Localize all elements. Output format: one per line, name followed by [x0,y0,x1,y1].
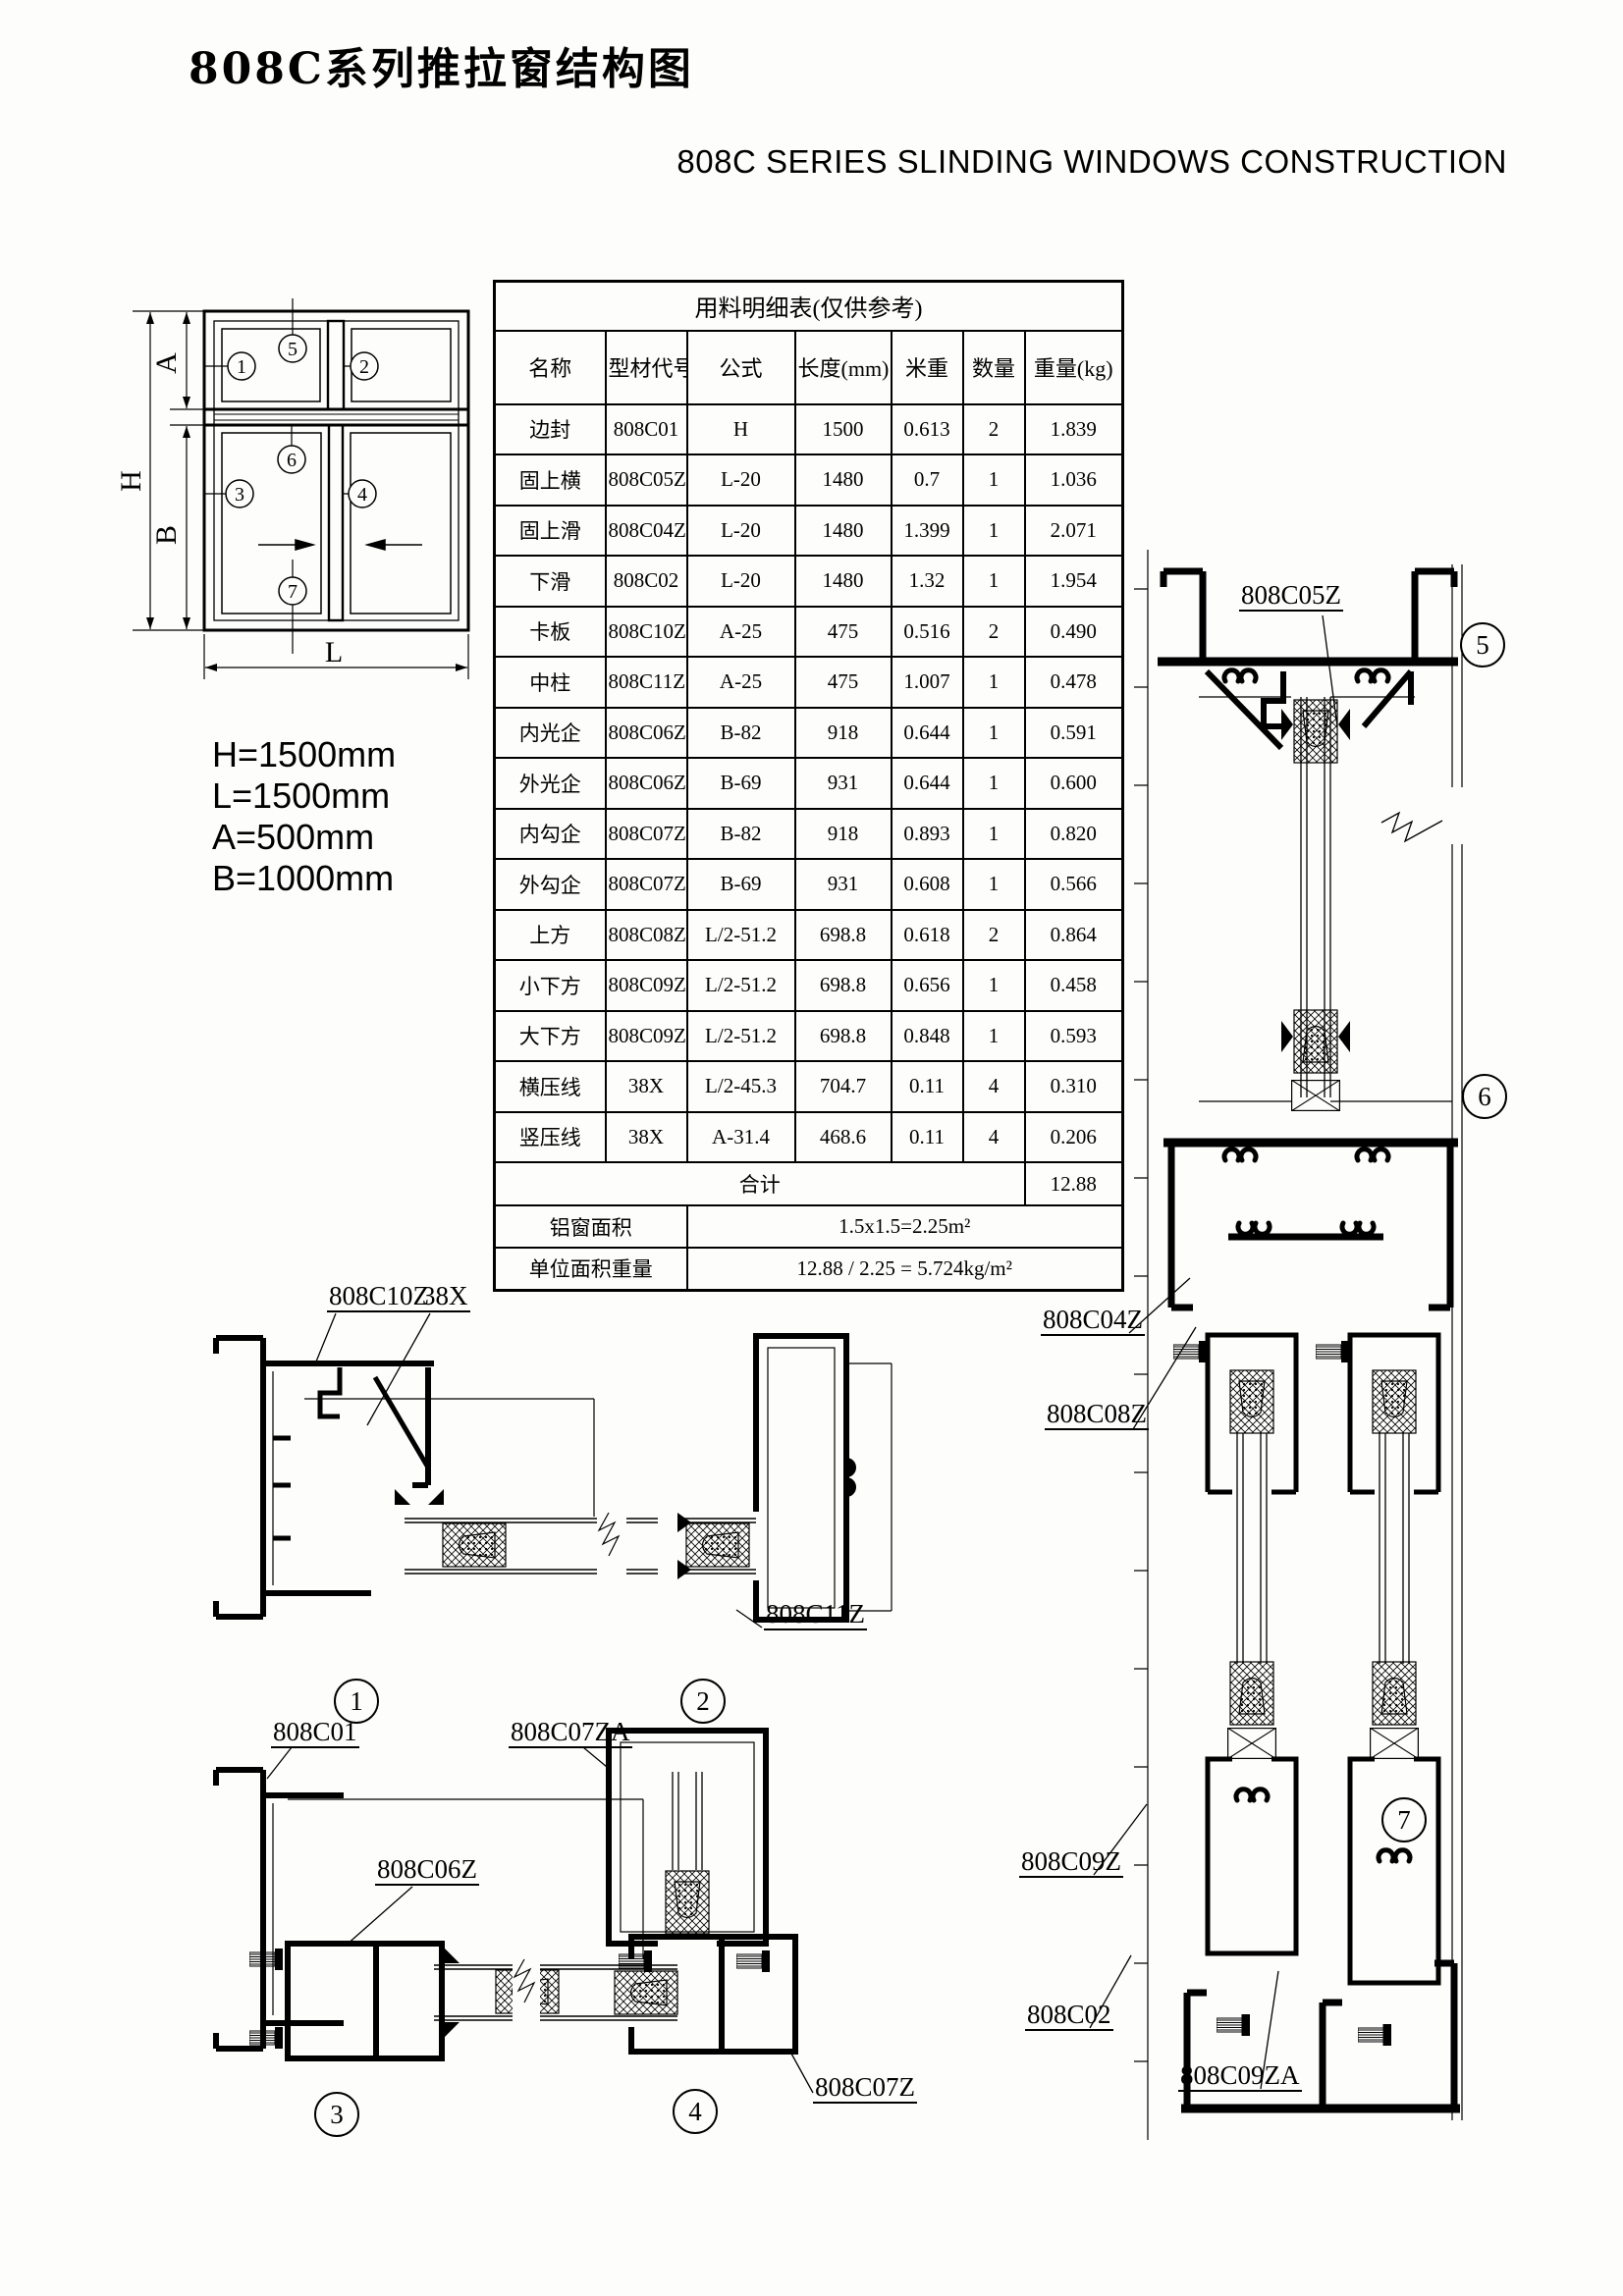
table-cell: 0.644 [892,708,963,759]
table-cell: 38X [606,1112,687,1163]
table-cell: 808C10Z [606,607,687,658]
col-profile-code: 型材代号 [606,331,687,404]
callout-5: 5 [1460,622,1505,667]
table-body: 边封808C01H15000.61321.839固上横808C05ZL-2014… [495,404,1123,1163]
table-cell: 918 [795,708,892,759]
table-cell: 1 [963,809,1025,860]
table-cell: 1 [963,454,1025,506]
table-cell: 0.613 [892,404,963,455]
glazing-into-mullion [677,1513,756,1579]
table-cell: 0.893 [892,809,963,860]
table-cell: L/2-51.2 [687,910,795,961]
mullion-profile-808C11Z [756,1336,892,1620]
table-cell: 0.478 [1025,657,1123,708]
table-cell: 1 [963,859,1025,910]
table-cell: 1 [963,960,1025,1011]
col-length: 长度(mm) [795,331,892,404]
svg-text:3: 3 [235,484,244,506]
table-cell: 2 [963,404,1025,455]
table-cell: 0.618 [892,910,963,961]
table-cell: 808C07ZA [606,809,687,860]
table-header-row: 名称 型材代号 公式 长度(mm) 米重 数量 重量(kg) [495,331,1123,404]
col-weight: 重量(kg) [1025,331,1123,404]
table-cell: B-69 [687,859,795,910]
table-row: 固上滑808C04ZL-2014801.39912.071 [495,506,1123,557]
table-cell: B-82 [687,809,795,860]
dimension-lines [133,311,468,679]
table-cell: H [687,404,795,455]
table-cell: 2 [963,607,1025,658]
table-cell: 0.656 [892,960,963,1011]
table-cell: 808C11Z [606,657,687,708]
svg-text:4: 4 [357,484,367,506]
table-cell: 固上横 [495,454,606,506]
table-cell: 0.864 [1025,910,1123,961]
table-row: 横压线38XL/2-45.3704.70.1140.310 [495,1061,1123,1112]
table-row: 竖压线38XA-31.4468.60.1140.206 [495,1112,1123,1163]
table-cell: 698.8 [795,960,892,1011]
table-cell: 1 [963,657,1025,708]
table-cell: 1500 [795,404,892,455]
table-cell: 0.516 [892,607,963,658]
table-cell: 468.6 [795,1112,892,1163]
sash-column-right [1316,1335,1438,1983]
fixed-glazing-horizontal-1 [304,1399,658,1585]
table-cell: A-25 [687,657,795,708]
vertical-section-drawing [1134,550,1478,2140]
svg-text:2: 2 [359,356,369,378]
table-cell: 2 [963,910,1025,961]
table-cell: 931 [795,758,892,809]
table-cell: 1480 [795,454,892,506]
table-cell: 808C01 [606,404,687,455]
svg-text:6: 6 [287,450,297,471]
table-cell: 横压线 [495,1061,606,1112]
svg-text:5: 5 [288,339,298,360]
break-symbol [1376,787,1466,844]
table-cell: 4 [963,1112,1025,1163]
table-cell: 竖压线 [495,1112,606,1163]
table-cell: 704.7 [795,1061,892,1112]
materials-table: 用料明细表(仅供参考) 名称 型材代号 公式 长度(mm) 米重 数量 重量(k… [493,280,1124,1292]
sash-column-left [1173,1335,1296,1953]
label-808C08Z: 808C08Z [1045,1400,1149,1430]
bead-38X [375,1377,428,1468]
table-cell: B-82 [687,708,795,759]
label-808C07ZA: 808C07ZA [509,1718,632,1748]
table-row: 卡板808C10ZA-254750.51620.490 [495,607,1123,658]
table-cell: 0.820 [1025,809,1123,860]
table-cell: 1.954 [1025,556,1123,607]
table-cell: 1 [963,1011,1025,1062]
table-cell: 4 [963,1061,1025,1112]
transom-profile-808C04Z [1163,1143,1458,1308]
table-cell: 1.839 [1025,404,1123,455]
col-name: 名称 [495,331,606,404]
dim-l: L=1500mm [212,775,396,817]
table-cell: B-69 [687,758,795,809]
table-cell: 固上滑 [495,506,606,557]
table-row: 中柱808C11ZA-254751.00710.478 [495,657,1123,708]
table-title: 用料明细表(仅供参考) [495,282,1123,331]
table-cell: 0.848 [892,1011,963,1062]
table-cell: 1.32 [892,556,963,607]
table-cell: 808C06Z [606,758,687,809]
table-cell: 外光企 [495,758,606,809]
schematic-callouts: 1 5 2 6 3 4 7 [226,335,378,605]
area-value: 1.5x1.5=2.25m² [687,1205,1123,1248]
table-cell: 808C07Z [606,859,687,910]
table-row: 边封808C01H15000.61321.839 [495,404,1123,455]
dimension-values: H=1500mm L=1500mm A=500mm B=1000mm [212,734,396,899]
table-cell: 808C09Z [606,960,687,1011]
table-cell: 0.490 [1025,607,1123,658]
fixed-glazing-unit [1199,697,1452,1111]
unit-weight-label: 单位面积重量 [495,1248,687,1290]
table-cell: L/2-51.2 [687,1011,795,1062]
horizontal-section-1-2 [147,1320,893,1644]
label-38X: 38X [420,1282,470,1312]
table-cell: L/2-45.3 [687,1061,795,1112]
callout-7: 7 [1381,1797,1427,1842]
table-cell: 1480 [795,556,892,607]
label-808C07Z: 808C07Z [813,2073,917,2104]
table-cell: 下滑 [495,556,606,607]
dim-h: H=1500mm [212,734,396,775]
table-cell: A-25 [687,607,795,658]
page-title: 808C系列推拉窗结构图 [189,33,694,96]
interlock-screw-right [736,1950,770,1972]
table-cell: 内勾企 [495,809,606,860]
unit-weight-value: 12.88 / 2.25 = 5.724kg/m² [687,1248,1123,1290]
table-cell: 1.399 [892,506,963,557]
table-cell: 外勾企 [495,859,606,910]
label-808C01: 808C01 [271,1718,359,1748]
table-cell: 1 [963,506,1025,557]
col-qty: 数量 [963,331,1025,404]
table-row: 内光企808C06ZB-829180.64410.591 [495,708,1123,759]
dimension-letters: H A B L [115,352,343,668]
table-cell: 内光企 [495,708,606,759]
table-row: 外光企808C06ZB-699310.64410.600 [495,758,1123,809]
table-cell: 边封 [495,404,606,455]
drawing-sheet: 808C系列推拉窗结构图 808C SERIES SLINDING WINDOW… [0,0,1623,2296]
total-value: 12.88 [1025,1162,1123,1205]
table-cell: 卡板 [495,607,606,658]
table-cell: L-20 [687,454,795,506]
total-row: 合计 12.88 [495,1162,1123,1205]
table-cell: 808C09ZA [606,1011,687,1062]
label-808C02: 808C02 [1025,2001,1113,2031]
unit-weight-row: 单位面积重量 12.88 / 2.25 = 5.724kg/m² [495,1248,1123,1290]
hook-glazing-block [666,1871,709,1934]
total-label: 合计 [495,1162,1025,1205]
callout-6: 6 [1462,1074,1507,1119]
table-cell: 0.600 [1025,758,1123,809]
svg-text:B: B [150,525,183,545]
window-schematic: H A B L 1 5 2 [113,294,486,707]
table-row: 下滑808C02L-2014801.3211.954 [495,556,1123,607]
table-cell: L-20 [687,506,795,557]
label-808C09ZA: 808C09ZA [1178,2061,1302,2092]
callout-1: 1 [334,1679,379,1724]
callout-2: 2 [680,1679,726,1724]
table-cell: 0.11 [892,1061,963,1112]
table-title-row: 用料明细表(仅供参考) [495,282,1123,331]
table-cell: 0.644 [892,758,963,809]
table-cell: 918 [795,809,892,860]
table-cell: 1 [963,708,1025,759]
table-cell: 小下方 [495,960,606,1011]
horizontal-section-3-4 [147,1703,854,2096]
label-808C06Z: 808C06Z [375,1855,479,1886]
dim-b: B=1000mm [212,858,396,899]
table-cell: 475 [795,607,892,658]
table-cell: 475 [795,657,892,708]
table-cell: 931 [795,859,892,910]
table-row: 固上横808C05ZL-2014800.711.036 [495,454,1123,506]
svg-text:1: 1 [237,356,246,378]
area-label: 铝窗面积 [495,1205,687,1248]
table-cell: 808C04Z [606,506,687,557]
label-808C04Z: 808C04Z [1041,1306,1145,1336]
table-cell: 808C02 [606,556,687,607]
label-808C11Z: 808C11Z [764,1600,867,1630]
table-cell: 1 [963,556,1025,607]
table-cell: L-20 [687,556,795,607]
label-808C05Z: 808C05Z [1239,581,1343,612]
table-cell: 0.591 [1025,708,1123,759]
table-cell: 2.071 [1025,506,1123,557]
col-formula: 公式 [687,331,795,404]
callout-3: 3 [314,2092,359,2137]
table-cell: 0.310 [1025,1061,1123,1112]
table-cell: 0.206 [1025,1112,1123,1163]
sash-stile-808C06Z [288,1944,442,2058]
table-cell: 1.007 [892,657,963,708]
page-subtitle: 808C SERIES SLINDING WINDOWS CONSTRUCTIO… [550,143,1507,181]
table-cell: 808C08Z [606,910,687,961]
clamp-profile-808C10Z [320,1363,434,1485]
label-808C10Z: 808C10Z [327,1282,431,1312]
callout-4: 4 [673,2089,718,2134]
svg-text:A: A [150,352,183,374]
table-cell: 0.608 [892,859,963,910]
table-cell: 698.8 [795,910,892,961]
dim-a: A=500mm [212,817,396,858]
table-cell: 上方 [495,910,606,961]
table-cell: 1 [963,758,1025,809]
label-808C09Z: 808C09Z [1019,1847,1123,1878]
table-row: 大下方808C09ZAL/2-51.2698.80.84810.593 [495,1011,1123,1062]
table-cell: 1.036 [1025,454,1123,506]
table-cell: 808C06Z [606,708,687,759]
table-cell: 0.593 [1025,1011,1123,1062]
table-row: 外勾企808C07ZB-699310.60810.566 [495,859,1123,910]
table-cell: 38X [606,1061,687,1112]
table-cell: 0.11 [892,1112,963,1163]
svg-text:7: 7 [288,581,298,603]
table-row: 内勾企808C07ZAB-829180.89310.820 [495,809,1123,860]
svg-text:H: H [115,470,147,492]
area-row: 铝窗面积 1.5x1.5=2.25m² [495,1205,1123,1248]
jamb-profile-808C01-lower [216,1770,344,2049]
table-cell: 698.8 [795,1011,892,1062]
table-row: 上方808C08ZL/2-51.2698.80.61820.864 [495,910,1123,961]
table-cell: A-31.4 [687,1112,795,1163]
slide-direction-arrows [258,540,422,550]
table-cell: 0.566 [1025,859,1123,910]
table-cell: L/2-51.2 [687,960,795,1011]
jamb-profile-808C01 [216,1338,371,1617]
svg-text:L: L [325,636,343,668]
table-cell: 中柱 [495,657,606,708]
table-cell: 0.458 [1025,960,1123,1011]
table-cell: 808C05Z [606,454,687,506]
table-cell: 大下方 [495,1011,606,1062]
col-meter-weight: 米重 [892,331,963,404]
table-cell: 0.7 [892,454,963,506]
table-row: 小下方808C09ZL/2-51.2698.80.65610.458 [495,960,1123,1011]
table-cell: 1480 [795,506,892,557]
